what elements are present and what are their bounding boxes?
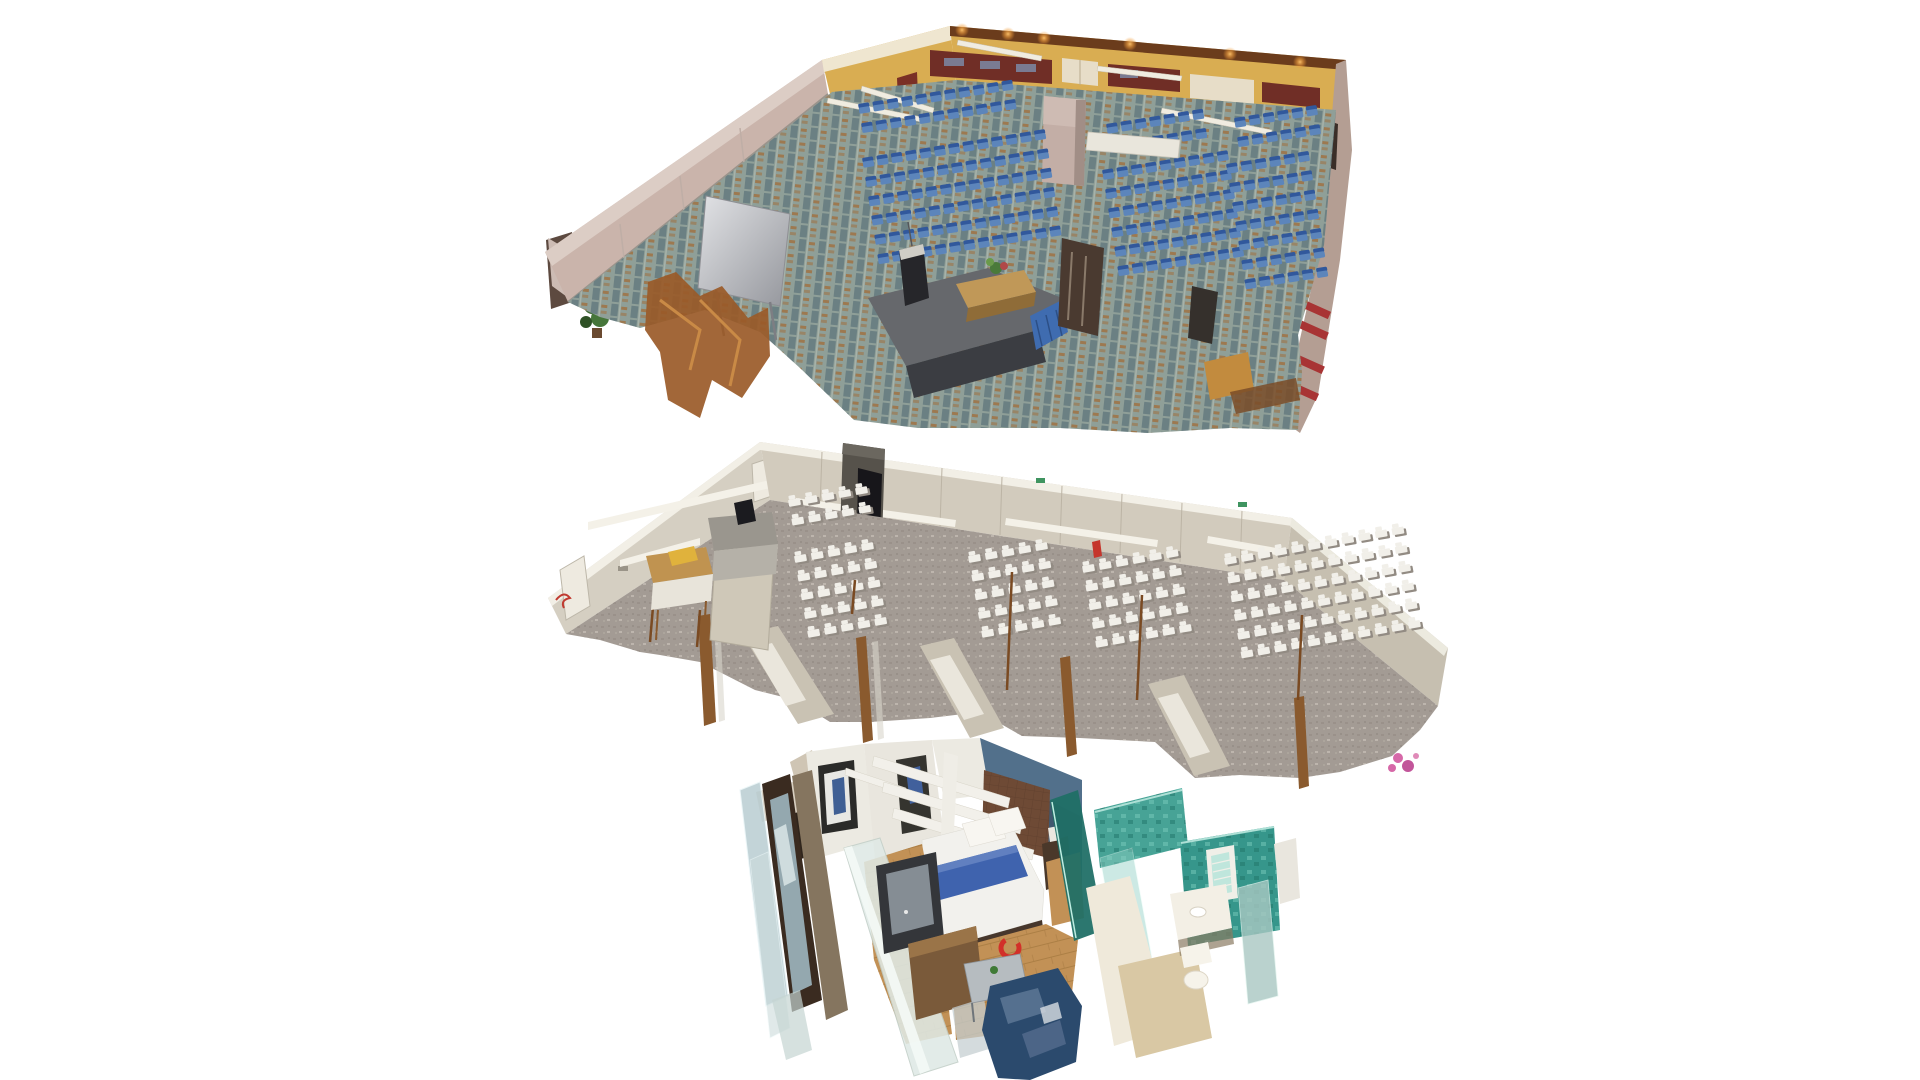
lectern-tablet — [734, 499, 756, 525]
board-picture — [944, 58, 964, 66]
easel-board — [698, 196, 790, 306]
pink-scan-artifact — [1388, 753, 1419, 772]
screenshot-root — [0, 0, 1920, 1080]
dollhouse-composite — [0, 0, 1920, 1080]
bottle — [990, 966, 998, 974]
ceiling-light — [1293, 55, 1307, 69]
scene-meeting-room — [548, 442, 1448, 789]
board-picture — [980, 61, 1000, 69]
flower-arrangement — [986, 258, 994, 266]
pink-blob — [1388, 764, 1396, 772]
scene-conference-hall — [545, 23, 1352, 433]
ceiling-light — [1123, 37, 1137, 51]
ceiling-light — [1037, 31, 1051, 45]
mirror-panel — [1058, 238, 1104, 336]
frame-art — [832, 777, 846, 815]
sink — [1190, 907, 1206, 917]
pink-blob — [1402, 760, 1414, 772]
tv-logo-dot — [904, 910, 908, 914]
exit-sign — [1238, 502, 1247, 507]
ceiling-light — [955, 23, 969, 37]
toilet-bowl — [1184, 971, 1208, 989]
board-picture — [1016, 64, 1036, 72]
flower-arrangement — [1000, 262, 1008, 270]
pink-blob — [1413, 753, 1419, 759]
wall-sign — [618, 566, 628, 571]
tv-screen — [886, 864, 934, 935]
exit-sign — [1036, 478, 1045, 483]
scene-hotel-room — [740, 738, 1300, 1080]
ceiling-light — [1223, 47, 1237, 61]
ceiling-light — [1001, 27, 1015, 41]
sofa-body — [982, 968, 1082, 1080]
column-shade — [1074, 100, 1086, 186]
plant-pot — [592, 328, 602, 338]
bathroom — [1050, 788, 1300, 1058]
sofa — [982, 968, 1082, 1080]
plant-foliage — [580, 316, 592, 328]
pink-blob — [1393, 753, 1403, 763]
